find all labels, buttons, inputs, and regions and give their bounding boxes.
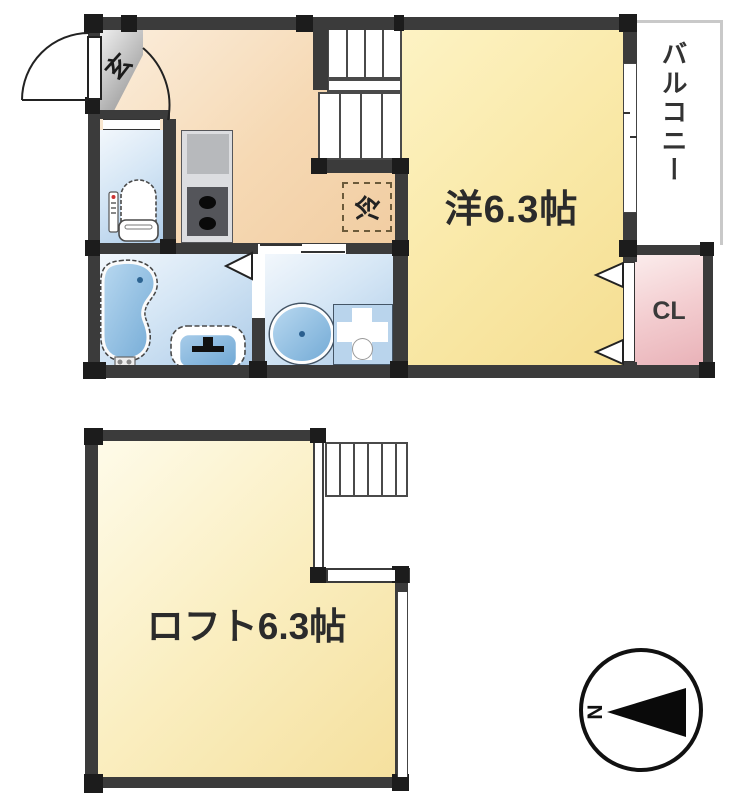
stair-tread bbox=[346, 29, 348, 77]
stair-tread bbox=[381, 94, 383, 158]
pillar-cap bbox=[160, 239, 176, 254]
toilet-icon bbox=[108, 174, 163, 244]
loft-room-label: ロフト6.3帖 bbox=[98, 596, 395, 650]
wall-segment bbox=[85, 440, 98, 778]
washbasin-icon bbox=[270, 304, 334, 364]
pillar-cap bbox=[619, 240, 637, 257]
pillar-cap bbox=[700, 242, 714, 256]
stair-landing bbox=[327, 79, 402, 92]
door-arrow-icon bbox=[596, 263, 623, 287]
window-sash-line bbox=[630, 136, 637, 138]
refrigerator-label: 冷 bbox=[348, 194, 385, 220]
closet-door-arrows bbox=[590, 258, 630, 368]
pillar-cap bbox=[296, 15, 313, 32]
pillar-cap bbox=[85, 240, 100, 256]
loft-window bbox=[397, 592, 408, 777]
wall-segment bbox=[703, 245, 713, 375]
main-window bbox=[623, 63, 637, 213]
closet-label: CL bbox=[635, 297, 703, 326]
pillar-cap bbox=[249, 361, 267, 378]
washing-machine-pan-icon bbox=[333, 304, 393, 365]
pillar-cap bbox=[392, 240, 409, 256]
pillar-cap bbox=[619, 14, 637, 32]
pillar-cap bbox=[311, 158, 327, 174]
door-arrow-icon bbox=[222, 250, 256, 282]
stair-tread bbox=[364, 29, 366, 77]
drain-icon bbox=[299, 331, 305, 337]
door-arrow-icon bbox=[596, 340, 623, 364]
bathtub-icon bbox=[98, 258, 170, 370]
wall-segment bbox=[393, 243, 408, 365]
stair-tread bbox=[360, 94, 362, 158]
staircase-upper-run bbox=[327, 27, 402, 79]
pillar-cap bbox=[83, 362, 106, 379]
sink-icon bbox=[168, 322, 248, 370]
wall-segment bbox=[252, 318, 265, 365]
main-room-label: 洋6.3帖 bbox=[400, 178, 623, 233]
pan-drain-icon bbox=[352, 338, 373, 360]
compass: N bbox=[574, 643, 710, 779]
wall-segment bbox=[313, 17, 328, 90]
pillar-cap bbox=[699, 362, 715, 378]
burner-icon bbox=[199, 196, 216, 209]
pillar-cap bbox=[310, 567, 326, 583]
stair-tread bbox=[382, 29, 384, 77]
wall-segment bbox=[102, 430, 314, 441]
sliding-door-line bbox=[301, 251, 345, 253]
loft-thin-wall bbox=[313, 441, 324, 570]
stair-tread bbox=[395, 444, 397, 495]
loft-opening bbox=[328, 570, 395, 581]
pillar-cap bbox=[84, 428, 103, 445]
stair-tread bbox=[339, 94, 341, 158]
staircase-loft bbox=[325, 442, 408, 497]
staircase-lower-run bbox=[318, 92, 402, 160]
pillar-cap bbox=[394, 15, 404, 31]
window-sash-line bbox=[623, 112, 630, 114]
floor-plan: 冷 玄 洋6.3帖 バルコニー CL ロフト6.3帖 N bbox=[0, 0, 729, 800]
stair-tread bbox=[353, 444, 355, 495]
north-label: N bbox=[584, 704, 607, 719]
stove-icon bbox=[187, 187, 228, 236]
pillar-cap bbox=[392, 158, 409, 174]
pillar-cap bbox=[84, 774, 103, 793]
refrigerator-space: 冷 bbox=[342, 182, 392, 232]
stair-tread bbox=[339, 444, 341, 495]
stair-tread bbox=[381, 444, 383, 495]
sliding-door-line bbox=[260, 244, 302, 246]
stair-tread bbox=[367, 444, 369, 495]
wall-segment bbox=[98, 777, 396, 788]
burner-icon bbox=[199, 217, 216, 230]
balcony-label: バルコニー bbox=[655, 25, 692, 200]
pillar-cap bbox=[390, 361, 408, 378]
pillar-cap bbox=[310, 428, 326, 443]
